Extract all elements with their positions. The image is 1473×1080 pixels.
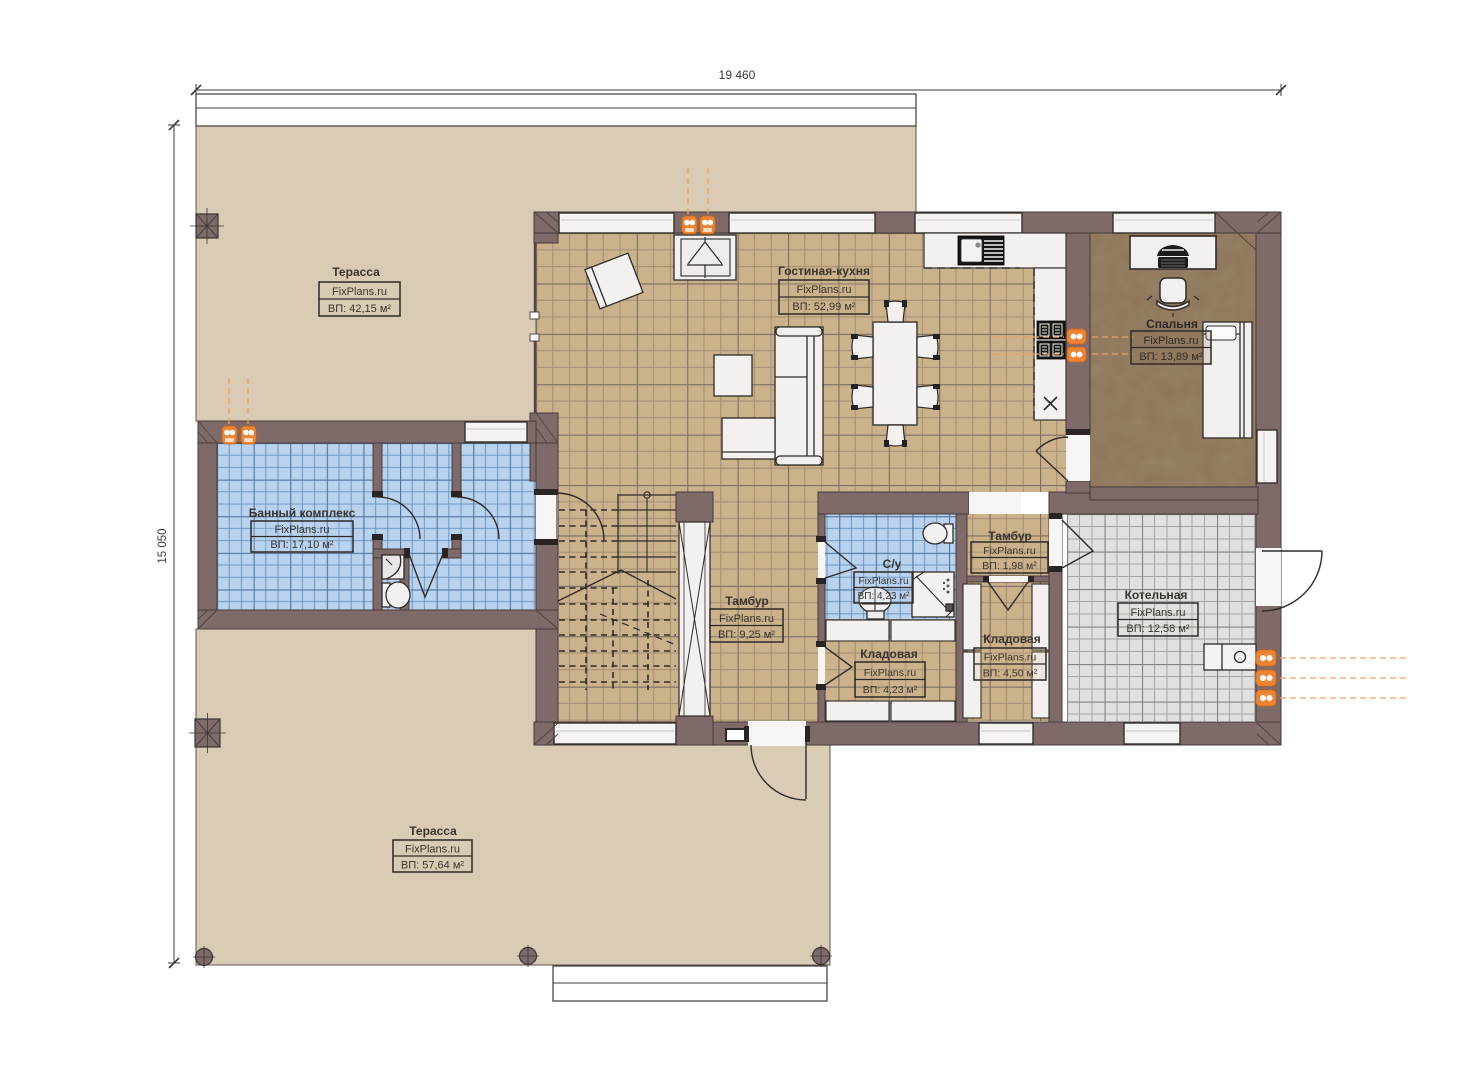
svg-text:FixPlans.ru: FixPlans.ru bbox=[858, 576, 908, 587]
svg-text:ВП: 13,89 м²: ВП: 13,89 м² bbox=[1139, 351, 1203, 363]
svg-text:ВП: 42,15 м²: ВП: 42,15 м² bbox=[328, 303, 392, 315]
svg-text:Гостиная-кухня: Гостиная-кухня bbox=[778, 264, 870, 278]
svg-text:FixPlans.ru: FixPlans.ru bbox=[1130, 607, 1185, 619]
svg-text:FixPlans.ru: FixPlans.ru bbox=[983, 545, 1036, 557]
svg-text:ВП: 57,64 м²: ВП: 57,64 м² bbox=[401, 860, 465, 872]
svg-text:Тамбур: Тамбур bbox=[725, 594, 769, 608]
svg-text:Терасса: Терасса bbox=[332, 265, 380, 279]
svg-text:FixPlans.ru: FixPlans.ru bbox=[984, 652, 1037, 664]
svg-text:FixPlans.ru: FixPlans.ru bbox=[1143, 335, 1198, 347]
svg-text:FixPlans.ru: FixPlans.ru bbox=[405, 844, 460, 856]
svg-text:ВП: 52,99 м²: ВП: 52,99 м² bbox=[792, 301, 856, 313]
svg-text:С/у: С/у bbox=[883, 557, 902, 571]
svg-text:ВП: 1,98 м²: ВП: 1,98 м² bbox=[982, 560, 1037, 572]
svg-text:ВП: 9,25 м²: ВП: 9,25 м² bbox=[718, 629, 775, 641]
svg-text:ВП: 4,23 м²: ВП: 4,23 м² bbox=[858, 591, 911, 602]
svg-text:ВП: 17,10 м²: ВП: 17,10 м² bbox=[270, 539, 334, 551]
svg-text:Терасса: Терасса bbox=[409, 824, 457, 838]
svg-text:19 460: 19 460 bbox=[719, 68, 756, 82]
svg-text:ВП: 12,58 м²: ВП: 12,58 м² bbox=[1126, 623, 1190, 635]
svg-text:Котельная: Котельная bbox=[1125, 588, 1188, 602]
svg-text:Банный комплекс: Банный комплекс bbox=[249, 506, 356, 520]
svg-text:FixPlans.ru: FixPlans.ru bbox=[796, 284, 851, 296]
svg-text:Кладовая: Кладовая bbox=[983, 632, 1040, 646]
svg-text:FixPlans.ru: FixPlans.ru bbox=[719, 613, 774, 625]
svg-text:ВП: 4,50 м²: ВП: 4,50 м² bbox=[983, 668, 1038, 680]
svg-text:FixPlans.ru: FixPlans.ru bbox=[332, 286, 387, 298]
svg-text:Тамбур: Тамбур bbox=[988, 529, 1032, 543]
svg-text:15 050: 15 050 bbox=[157, 528, 169, 563]
svg-text:Кладовая: Кладовая bbox=[860, 647, 917, 661]
svg-text:FixPlans.ru: FixPlans.ru bbox=[274, 524, 329, 536]
svg-text:ВП: 4,23 м²: ВП: 4,23 м² bbox=[863, 684, 918, 696]
svg-text:Спальня: Спальня bbox=[1146, 317, 1198, 331]
svg-text:FixPlans.ru: FixPlans.ru bbox=[864, 667, 917, 679]
